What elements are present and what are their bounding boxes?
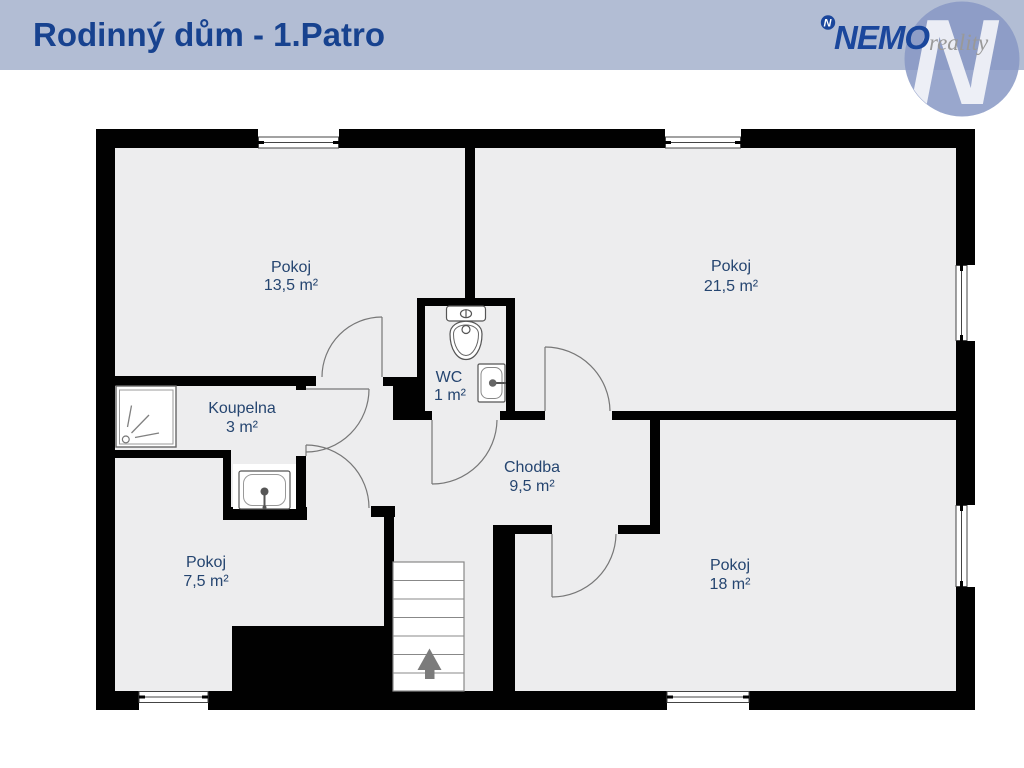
svg-text:13,5 m²: 13,5 m² [264, 277, 319, 294]
svg-text:Pokoj: Pokoj [271, 259, 311, 276]
svg-text:Koupelna: Koupelna [208, 400, 276, 417]
svg-text:18 m²: 18 m² [710, 576, 752, 593]
svg-text:Pokoj: Pokoj [710, 557, 750, 574]
svg-text:NEMO: NEMO [834, 19, 930, 56]
svg-text:N: N [824, 18, 833, 30]
svg-text:reality: reality [929, 30, 989, 55]
svg-text:7,5 m²: 7,5 m² [183, 573, 229, 590]
svg-text:3 m²: 3 m² [226, 419, 259, 436]
svg-text:1 m²: 1 m² [434, 387, 467, 404]
svg-text:Pokoj: Pokoj [711, 258, 751, 275]
svg-text:21,5 m²: 21,5 m² [704, 278, 759, 295]
svg-text:9,5 m²: 9,5 m² [509, 478, 555, 495]
svg-text:Chodba: Chodba [504, 459, 560, 476]
svg-text:WC: WC [436, 369, 463, 386]
svg-text:Pokoj: Pokoj [186, 554, 226, 571]
